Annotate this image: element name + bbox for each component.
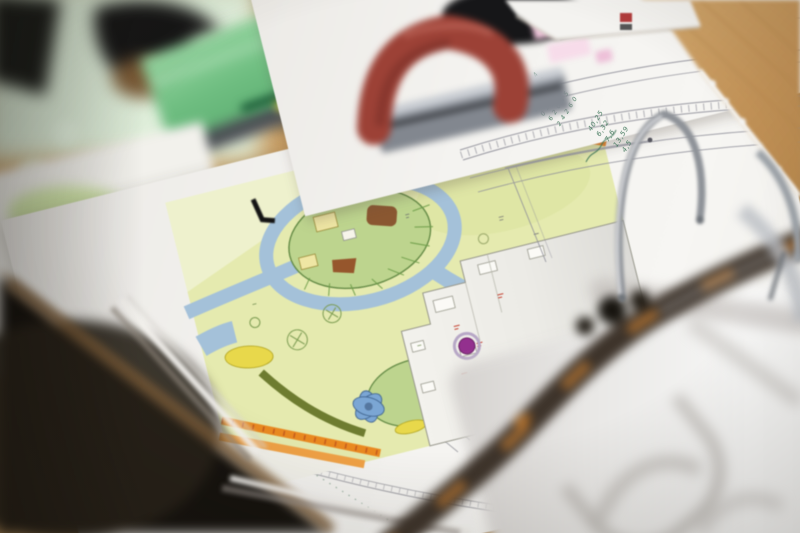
binder-ring (618, 114, 704, 302)
ring-shadows (598, 322, 800, 533)
binder-hardware (0, 0, 800, 533)
photo-canvas: 40,25 27,4341,4 29,543,43 31,4545,3 33,4… (0, 0, 800, 533)
binder-rail (385, 238, 800, 533)
